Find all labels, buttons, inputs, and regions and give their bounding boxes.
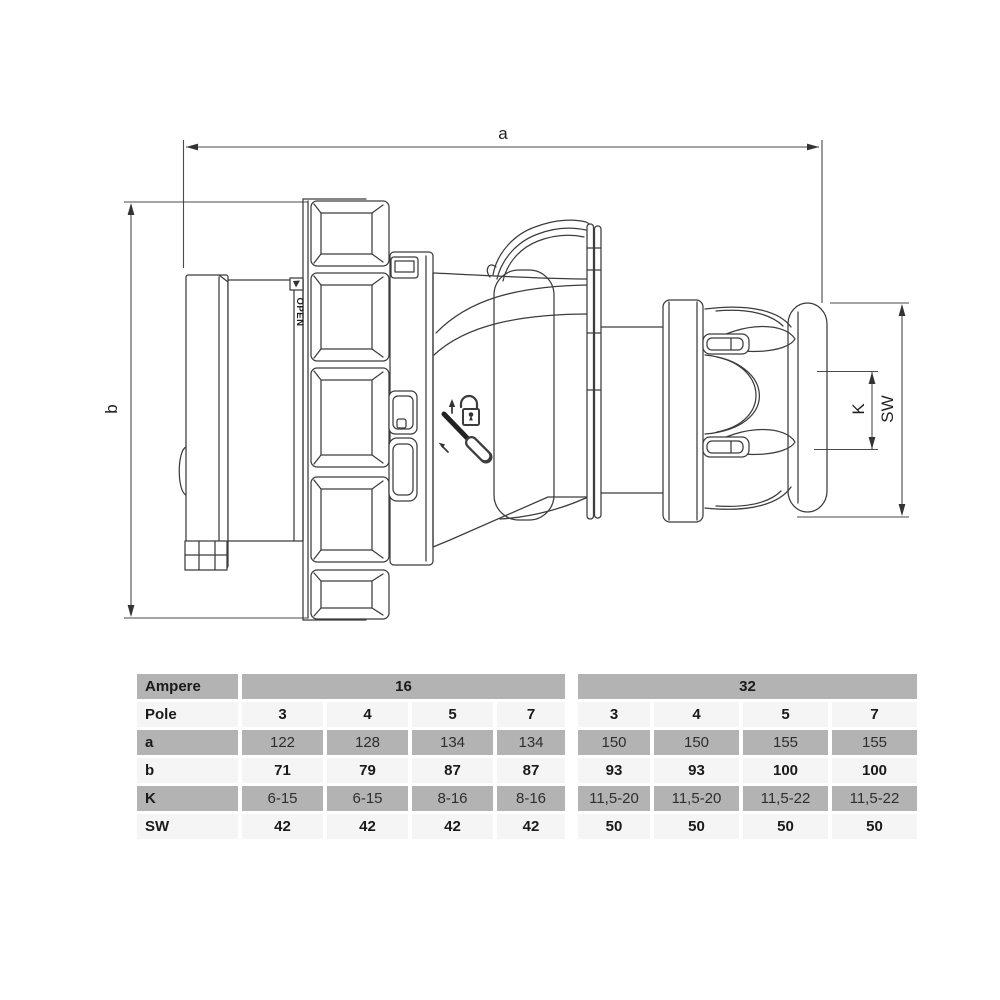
dimension-a [184,140,823,303]
table-cell: 122 [242,730,323,755]
table-cell: 11,5-20 [654,786,739,811]
table-cell: 3 [578,702,650,727]
table-row-label: SW [137,814,238,839]
open-marking [290,278,303,290]
table-cell: 79 [327,758,408,783]
table-cell: 93 [578,758,650,783]
arrow-up-icon [449,399,455,413]
table-corner-label: Ampere [137,674,238,699]
table-group-header-32: 32 [578,674,917,699]
table-cell: 42 [497,814,565,839]
open-label: OPEN [294,298,305,327]
table-cell: 134 [497,730,565,755]
dimension-label-a: a [498,124,508,143]
plug-technical-drawing: a b K SW [0,0,1000,665]
table-cell: 11,5-22 [832,786,917,811]
table-cell: 7 [497,702,565,727]
table-cell: 100 [832,758,917,783]
end-cap [788,303,827,512]
table-cell: 4 [327,702,408,727]
table-cell: 50 [832,814,917,839]
table-cell: 42 [242,814,323,839]
dimension-label-k: K [849,403,868,415]
back-cap [179,275,228,570]
body-cylinder [228,280,303,541]
table-group-header-16: 16 [242,674,565,699]
arrow-diagonal-icon [439,443,448,452]
table-cell: 42 [412,814,493,839]
cable-clip-top [391,257,418,278]
table-cell: 5 [412,702,493,727]
dimension-label-sw: SW [878,395,897,422]
table-cell: 7 [832,702,917,727]
table-cell: 50 [743,814,828,839]
strain-relief-petals [703,307,798,509]
table-cell: 93 [654,758,739,783]
gland-nut [663,300,703,522]
table-cell: 50 [578,814,650,839]
latch-button-lower [389,438,417,501]
table-cell: 87 [497,758,565,783]
table-cell: 3 [242,702,323,727]
table-cell: 134 [412,730,493,755]
hinge-plate [587,224,601,519]
table-cell: 150 [654,730,739,755]
table-cell: 150 [578,730,650,755]
spec-table: Ampere1632Pole34573457a12212813413415015… [137,674,917,839]
table-row-label: K [137,786,238,811]
table-cell: 5 [743,702,828,727]
table-cell: 100 [743,758,828,783]
table-cell: 6-15 [242,786,323,811]
page: a b K SW [0,0,1000,1000]
padlock-open-icon [461,396,479,425]
latch-button-upper [389,391,417,434]
petal-clip-top [703,334,749,354]
table-cell: 50 [654,814,739,839]
table-cell: 8-16 [497,786,565,811]
petal-clip-bottom [703,437,749,457]
table-cell: 42 [327,814,408,839]
table-cell: 6-15 [327,786,408,811]
table-cell: 11,5-22 [743,786,828,811]
table-cell: 71 [242,758,323,783]
table-cell: 11,5-20 [578,786,650,811]
table-row-label: b [137,758,238,783]
cone-housing [433,270,590,547]
table-cell: 87 [412,758,493,783]
table-cell: 155 [743,730,828,755]
grip-ring [303,199,389,620]
table-cell: 128 [327,730,408,755]
dimension-label-b: b [102,404,121,413]
table-row-label: a [137,730,238,755]
barrel [601,327,663,493]
table-cell: 155 [832,730,917,755]
table-row-label: Pole [137,702,238,727]
table-cell: 4 [654,702,739,727]
collar [389,252,433,565]
table-cell: 8-16 [412,786,493,811]
dimension-k [814,372,878,450]
